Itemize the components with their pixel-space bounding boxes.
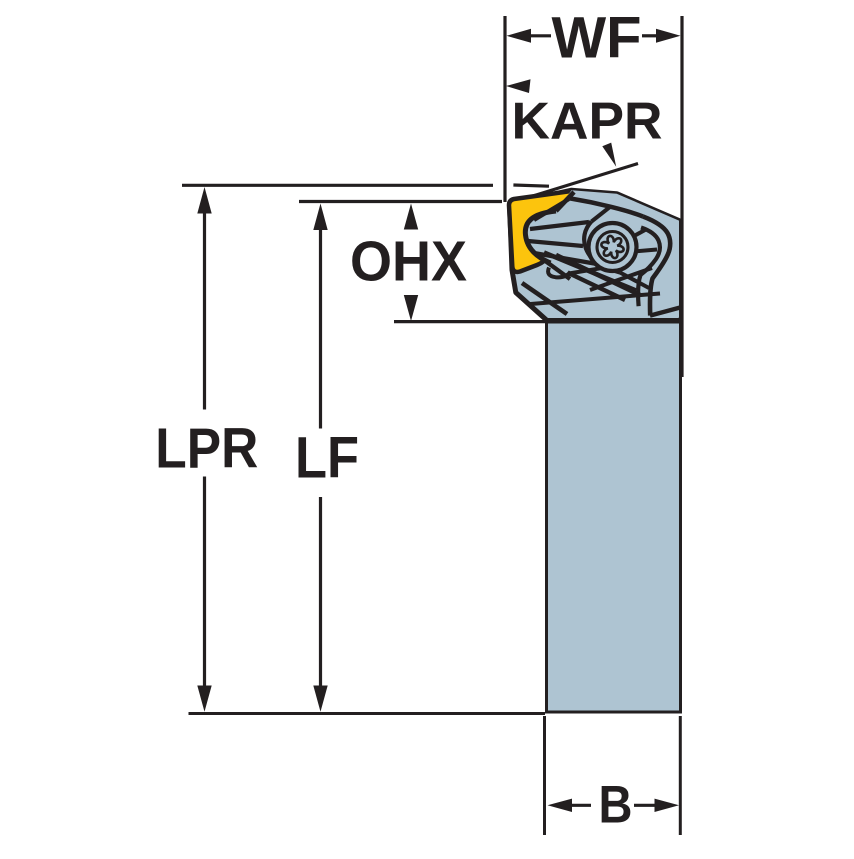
svg-text:KAPR: KAPR bbox=[512, 93, 663, 151]
svg-text:LPR: LPR bbox=[155, 417, 258, 481]
svg-text:B: B bbox=[599, 776, 633, 835]
svg-text:WF: WF bbox=[552, 6, 642, 71]
svg-text:OHX: OHX bbox=[350, 230, 467, 294]
svg-text:LF: LF bbox=[295, 426, 359, 491]
